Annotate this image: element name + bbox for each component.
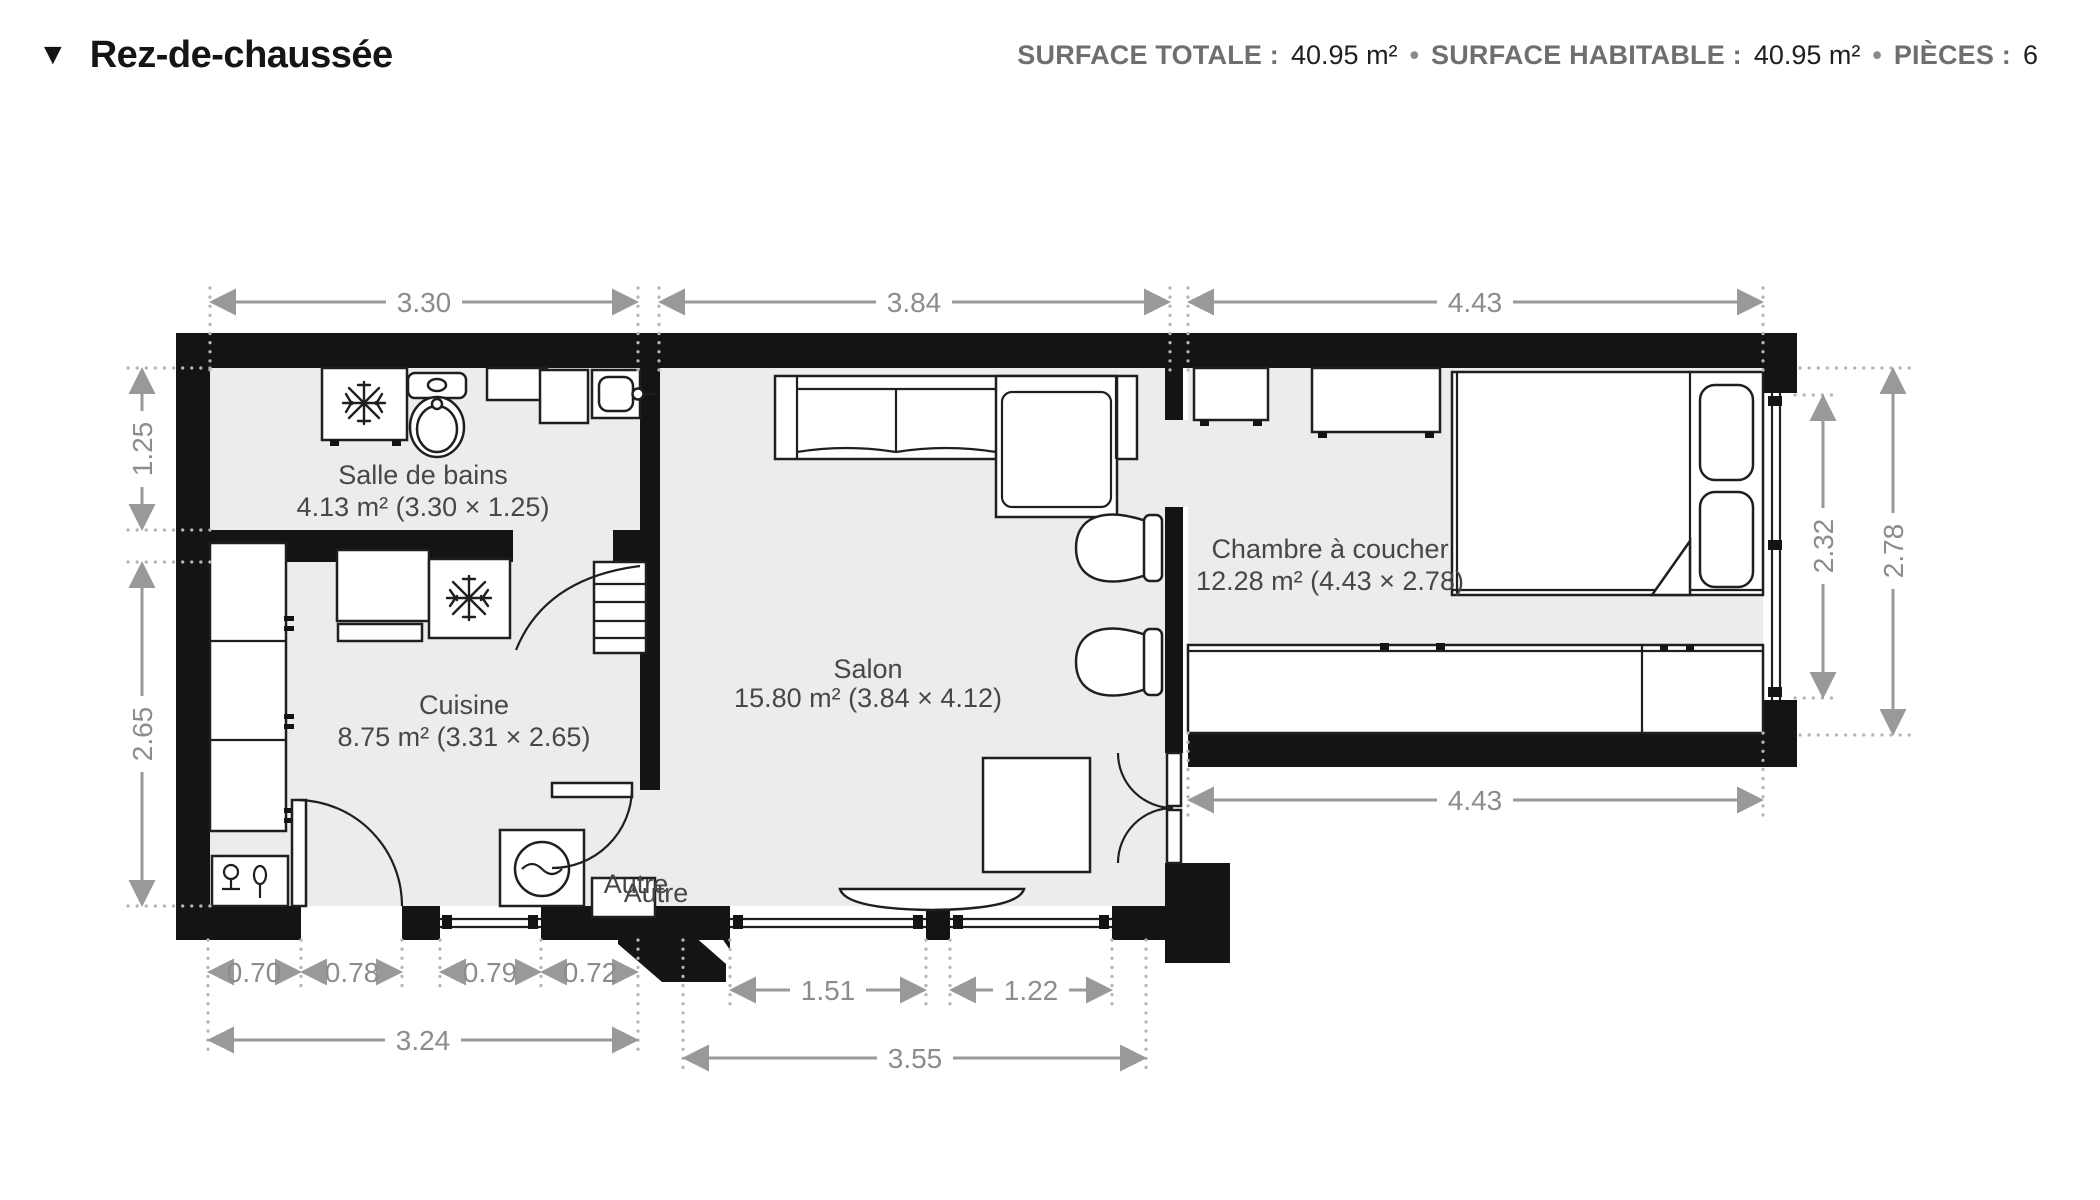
kitchen-window bbox=[440, 915, 541, 929]
room-area-salon: 15.80 m² (3.84 × 4.12) bbox=[734, 683, 1002, 713]
dim-label: 3.30 bbox=[397, 287, 452, 318]
room-label-salon: Salon bbox=[833, 654, 902, 684]
dim-label: 0.72 bbox=[563, 957, 618, 988]
bedroom-dresser bbox=[1188, 643, 1763, 733]
dim-label: 2.78 bbox=[1878, 524, 1909, 579]
dim-label: 4.43 bbox=[1448, 785, 1503, 816]
kitchen-counter bbox=[337, 550, 429, 621]
salon-window-2 bbox=[950, 915, 1112, 929]
room-label-kitchen: Cuisine bbox=[419, 690, 509, 720]
salon-window-1 bbox=[730, 915, 926, 929]
dim-label: 0.78 bbox=[325, 957, 380, 988]
room-area-bedroom: 12.28 m² (4.43 × 2.78) bbox=[1196, 566, 1464, 596]
armchair bbox=[1076, 629, 1162, 696]
pillow bbox=[1700, 385, 1753, 480]
room-label-bathroom: Salle de bains bbox=[338, 460, 508, 490]
room-area-kitchen: 8.75 m² (3.31 × 2.65) bbox=[338, 722, 591, 752]
radiator bbox=[840, 889, 1024, 910]
room-label-autre-2: Autre bbox=[624, 878, 689, 908]
bedroom-window bbox=[1768, 393, 1782, 700]
dim-label: 1.22 bbox=[1004, 975, 1059, 1006]
bath-cabinet bbox=[540, 370, 588, 423]
kitchen-sink-cabinet bbox=[212, 856, 288, 906]
dim-label: 2.65 bbox=[127, 707, 158, 762]
dim-label: 1.25 bbox=[127, 422, 158, 477]
floor-plan: 3.30 3.84 4.43 1.25 2.65 0.70 0.78 0.79 … bbox=[0, 0, 2100, 1200]
dim-label: 4.43 bbox=[1448, 287, 1503, 318]
snowflake-icon bbox=[447, 576, 491, 620]
kitchen-shelf bbox=[338, 624, 422, 641]
kitchen-counter-column bbox=[210, 543, 286, 831]
bath-cabinet bbox=[487, 368, 547, 400]
washing-machine-icon bbox=[500, 830, 584, 906]
dim-label: 3.84 bbox=[887, 287, 942, 318]
dim-label: 2.32 bbox=[1808, 519, 1839, 574]
dim-label: 3.55 bbox=[888, 1043, 943, 1074]
dim-label: 1.51 bbox=[801, 975, 856, 1006]
table bbox=[983, 758, 1090, 872]
dim-label: 0.70 bbox=[227, 957, 282, 988]
snowflake-icon bbox=[343, 382, 385, 424]
toilet-icon bbox=[408, 373, 466, 457]
room-label-bedroom: Chambre à coucher bbox=[1211, 534, 1448, 564]
double-bed bbox=[1452, 372, 1763, 595]
room-area-bathroom: 4.13 m² (3.30 × 1.25) bbox=[297, 492, 550, 522]
bedroom-cabinet bbox=[1194, 368, 1268, 420]
dim-label: 3.24 bbox=[396, 1025, 451, 1056]
pillow bbox=[1700, 492, 1753, 587]
dim-label: 0.79 bbox=[463, 957, 518, 988]
armchair bbox=[1076, 515, 1162, 582]
bedroom-cabinet bbox=[1312, 368, 1440, 432]
